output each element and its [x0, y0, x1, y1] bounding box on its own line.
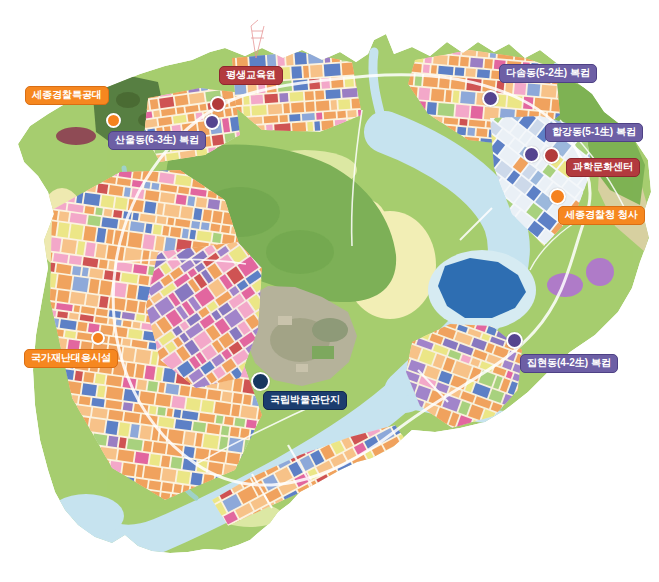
label-sejong-police-swat: 세종경찰특공대 — [25, 86, 109, 105]
dot-science-culture-center — [543, 147, 560, 164]
dot-sanul-dong-6-3-bokkeom — [204, 114, 220, 130]
dot-jiphyeon-dong-4-2-bokkeom — [506, 332, 523, 349]
dot-lifelong-education-center — [210, 96, 226, 112]
label-jiphyeon-dong-bokkeom: 집현동(4-2生) 복컴 — [520, 354, 618, 373]
dot-sejong-police-hq — [549, 188, 566, 205]
dot-hapgang-dong-5-1-bokkeom — [523, 146, 540, 163]
label-national-disaster-response-facility: 국가재난대응시설 — [24, 349, 118, 368]
dot-sejong-police-swat — [106, 113, 121, 128]
dot-national-disaster-response-facility — [91, 331, 105, 345]
label-science-culture-center: 과학문화센터 — [566, 158, 640, 177]
label-national-museum-complex: 국립박물관단지 — [263, 391, 347, 410]
dot-dasom-dong-5-2-bokkeom — [482, 90, 499, 107]
sejong-city-map-page: 세종경찰특공대 평생교육원 산울동(6-3生) 복컴 다솜동(5-2生) 복컴 … — [0, 0, 659, 582]
label-sanul-dong-bokkeom: 산울동(6-3生) 복컴 — [108, 131, 206, 150]
label-dasom-dong-bokkeom: 다솜동(5-2生) 복컴 — [499, 64, 597, 83]
label-sejong-police-hq: 세종경찰청 청사 — [558, 206, 645, 225]
dot-national-museum-complex — [251, 372, 270, 391]
label-lifelong-education-center: 평생교육원 — [219, 66, 283, 85]
label-hapgang-dong-bokkeom: 합강동(5-1生) 복컴 — [545, 123, 643, 142]
